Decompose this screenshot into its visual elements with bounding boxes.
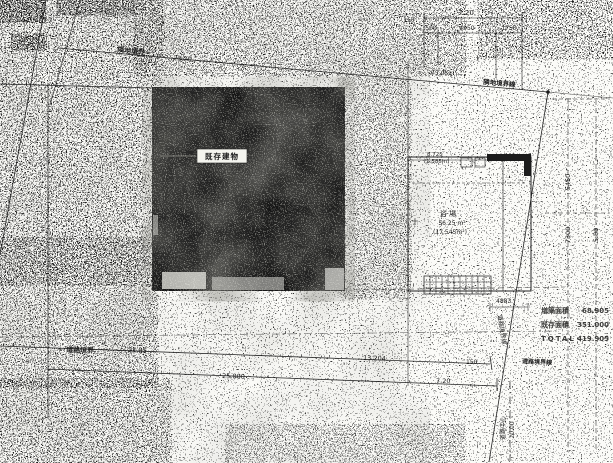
road-boundary-line-name-2: 道路境界線 xyxy=(522,357,552,367)
area-table-row-value: 419.905 xyxy=(577,335,609,343)
boundary-corner-point xyxy=(546,90,550,94)
road-boundary-label: 道路境界 xyxy=(66,345,95,355)
dim-top-seg1: 500 xyxy=(425,25,437,32)
scanned-site-plan: 既存建物 隣地境界 23.20 隣地境界線 7.20 500 4950 1750… xyxy=(0,0,613,463)
dim-small-right: 4883 xyxy=(496,298,511,305)
dim-top-seg3: 1750 xyxy=(501,25,516,32)
extension-area-sub: (17.545m²) xyxy=(433,229,467,236)
dim-right-seg2: 7300 xyxy=(564,227,572,244)
road-length-2: 25.000 xyxy=(222,372,245,381)
road-length-1: 21.85 xyxy=(128,346,147,355)
dim-top-side: 150 xyxy=(403,17,415,24)
area-table-row-label: 増築面積 xyxy=(541,306,570,315)
extension-note-1: 8.725 xyxy=(427,152,443,158)
dim-right-seg1: 5450 xyxy=(564,174,572,191)
existing-building-label: 既存建物 xyxy=(205,151,239,161)
neighbor-boundary-length: 23.20 xyxy=(173,54,192,64)
dim-top-seg2: 4950 xyxy=(459,25,474,32)
dim-road-seg2: 150 xyxy=(466,359,478,366)
dim-top-total: 7.20 xyxy=(458,9,474,17)
road-center-label: 道路中心 xyxy=(499,416,507,440)
dim-right-seg3: 5.80 xyxy=(592,228,600,242)
extension-area: 56.25 m² xyxy=(438,220,466,227)
dim-road-seg3: 7.20 xyxy=(436,377,450,385)
area-table-row-label: TOTAL xyxy=(541,335,576,343)
area-table-row-value: 351.000 xyxy=(577,321,609,329)
road-center-length: 20.00 xyxy=(509,421,516,438)
extension-thick-wall-corner xyxy=(524,154,531,176)
area-table-row-value: 68.905 xyxy=(582,307,609,315)
dim-road-seg1: 13.204 xyxy=(363,354,386,363)
extension-room-label: 浴 場 xyxy=(440,209,456,218)
area-table-row-label: 既存面積 xyxy=(541,320,570,329)
existing-building xyxy=(152,87,345,291)
site-plan-drawing: 既存建物 隣地境界 23.20 隣地境界線 7.20 500 4950 1750… xyxy=(0,0,613,463)
extension-note-2: (1.585m) xyxy=(424,159,449,165)
